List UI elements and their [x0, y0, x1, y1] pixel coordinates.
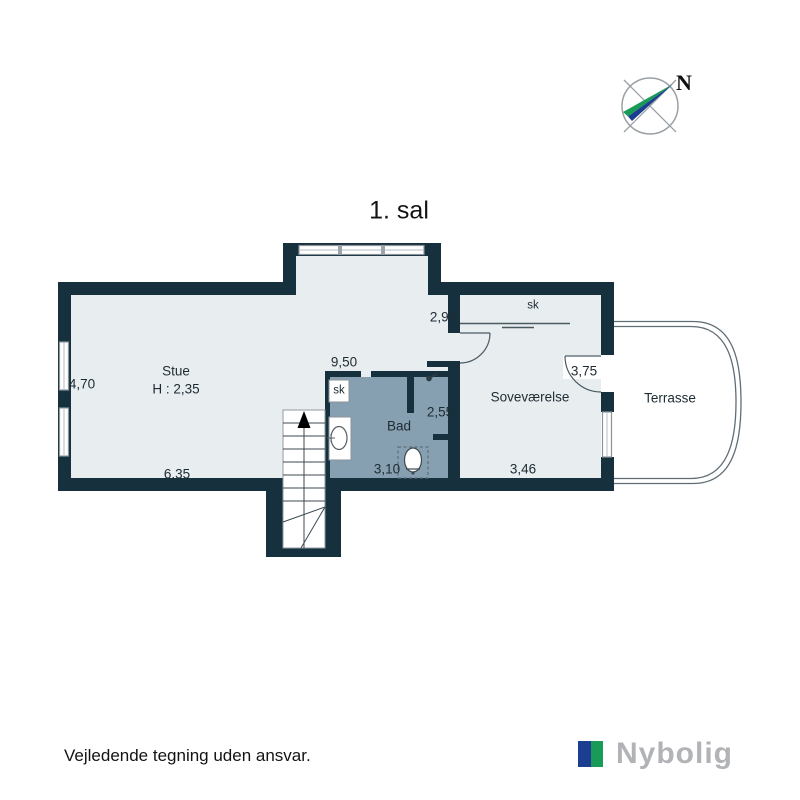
- brand-name: Nybolig: [616, 737, 733, 771]
- dim-sovevaerelse-bottom: 3,46: [510, 462, 536, 476]
- staircase: [283, 410, 325, 548]
- wall-bath-bedroom: [448, 361, 460, 478]
- room-label-stue: Stue: [162, 364, 190, 378]
- wall-top-left: [58, 282, 296, 295]
- dormer-floor: [296, 256, 428, 295]
- dim-terrace-door: 3,75: [571, 364, 597, 378]
- compass-north-label: N: [676, 70, 692, 95]
- wall-bottom: [58, 478, 614, 491]
- dim-stue-left: 4,70: [69, 377, 95, 391]
- wall-stub: [433, 434, 448, 440]
- compass-needle-blue: [628, 84, 673, 121]
- window-left-lower: [60, 408, 69, 456]
- brand-logo-green-square: [591, 741, 603, 767]
- dim-stue-right: 2,90: [430, 310, 456, 324]
- room-label-terrasse: Terrasse: [644, 391, 696, 405]
- brand-logo-icon: [578, 741, 603, 767]
- disclaimer-text: Vejledende tegning uden ansvar.: [64, 746, 311, 766]
- closet-label-sovevaerelse: sk: [527, 300, 539, 312]
- compass-needle-green: [623, 84, 673, 117]
- brand-logo-blue-square: [578, 741, 591, 767]
- window-left-upper: [60, 342, 69, 390]
- window-dormer: [299, 246, 424, 255]
- wall-stub: [407, 377, 414, 413]
- window-bedroom-right: [603, 412, 612, 457]
- sink-icon: [327, 417, 351, 460]
- closet-label-bad: sk: [333, 385, 345, 397]
- page-title: 1. sal: [369, 197, 429, 226]
- dim-stue-top: 9,50: [331, 355, 357, 369]
- wall-right: [601, 392, 614, 412]
- dim-bad-niche: 2,55: [427, 405, 453, 419]
- compass-rose-icon: N: [622, 70, 692, 134]
- dim-stue-bottom: 6,35: [164, 467, 190, 481]
- wall-top-right: [428, 282, 614, 295]
- room-label-bad: Bad: [387, 419, 411, 433]
- ceiling-height-label: H : 2,35: [152, 382, 199, 396]
- dim-bad-bottom: 3,10: [374, 462, 400, 476]
- room-label-sovevaerelse: Soveværelse: [491, 390, 570, 404]
- wall-bath-top: [325, 371, 361, 377]
- wall-right: [601, 282, 614, 355]
- floorplan-page: N 1. sal Stue H : 2,35 6,35 4,70 9,50 2,…: [0, 0, 800, 800]
- brand-logo: Nybolig: [578, 737, 733, 771]
